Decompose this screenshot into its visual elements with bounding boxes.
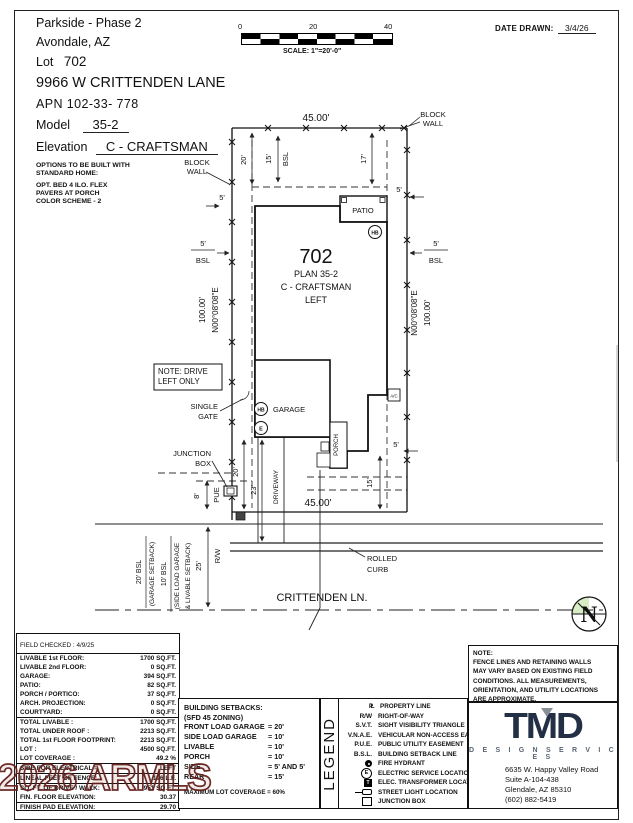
plan-lot-number: 702: [299, 246, 332, 268]
area-rows: LIVABLE 1st FLOOR:1700 SQ.FT. LIVABLE 2n…: [17, 653, 179, 717]
fire-hydrant-icon: [365, 760, 372, 767]
lot-width-bottom: 45.00': [305, 498, 332, 509]
drive-note: NOTE: DRIVE: [158, 367, 208, 376]
street-light-symbol: [236, 512, 245, 520]
bsl-label: BSL: [429, 256, 443, 265]
bsl-label: BSL: [196, 256, 210, 265]
legend-title: LEGEND: [321, 717, 338, 791]
legend-label: JUNCTION BOX: [378, 798, 426, 805]
setback-note: 10' BSL: [161, 562, 168, 586]
setbacks-title: BUILDING SETBACKS:: [184, 703, 314, 713]
tmd-tagline: D E S I G N S E R V I C E S: [469, 747, 617, 761]
legend: LEGEND PLPROPERTY LINE R/WRIGHT-OF-WAY S…: [320, 698, 468, 809]
block-wall-label: BLOCK: [184, 158, 209, 167]
row-label: LIVABLE 1st FLOOR:: [20, 654, 84, 663]
table-row: TOTAL LIVABLE :1700 SQ.FT.: [17, 718, 179, 727]
row-label: GARAGE:: [20, 672, 50, 681]
drive-note: LEFT ONLY: [158, 377, 201, 386]
row-label: LIVABLE 2nd FLOOR:: [20, 663, 86, 672]
note-title: NOTE:: [473, 649, 613, 658]
legend-row: TELEC. TRANSFORMER LOCATION: [342, 778, 481, 788]
row-label: TOTAL 1st FLOOR FOOTPRINT:: [20, 736, 116, 745]
row-value: = 10': [268, 742, 314, 752]
electric-label: E: [259, 427, 263, 433]
table-row: LIVABLE 1st FLOOR:1700 SQ.FT.: [17, 654, 179, 663]
row-label: PORCH / PORTICO:: [20, 690, 80, 699]
ac-label: A/C: [390, 394, 397, 399]
tmd-phone: (602) 882-5419: [505, 795, 617, 805]
block-wall-label: BLOCK: [420, 110, 445, 119]
dim-25: 25': [194, 561, 203, 571]
junction-box-icon: [362, 797, 372, 806]
row-value: 394 SQ.FT.: [144, 672, 176, 681]
row-label: SIDE LOAD GARAGE: [184, 732, 268, 742]
transformer-icon: T: [364, 779, 372, 787]
setbacks-zoning: (SFD 45 ZONING): [184, 713, 314, 723]
dim-15: 15': [365, 478, 374, 488]
legend-label: RIGHT-OF-WAY: [378, 713, 424, 720]
bearing-distance-right: 100.00': [423, 300, 432, 326]
setback-row: LIVABLE= 10': [184, 742, 314, 752]
setback-row: FRONT LOAD GARAGE= 20': [184, 722, 314, 732]
tmd-address-line: Glendale, AZ 85310: [505, 785, 617, 795]
row-value: 82 SQ.FT.: [147, 681, 176, 690]
pue-label: PUE: [212, 487, 221, 502]
armls-watermark: 2026 ARMLS: [0, 757, 211, 799]
block-wall-label: WALL: [423, 119, 443, 128]
legend-label: BUILDING SETBACK LINE: [378, 751, 457, 758]
pue-symbol: P.U.E.: [342, 741, 372, 748]
table-row: TOTAL UNDER ROOF :2213 SQ.FT.: [17, 727, 179, 736]
table-row: ARCH. PROJECTION:0 SQ.FT.: [17, 699, 179, 708]
street-name: CRITTENDEN LN.: [276, 592, 367, 604]
table-row: LIVABLE 2nd FLOOR:0 SQ.FT.: [17, 663, 179, 672]
note-box: NOTE: FENCE LINES AND RETAINING WALLS MA…: [468, 645, 618, 702]
row-value: 0 SQ.FT.: [151, 663, 176, 672]
dim-5: 5': [200, 239, 206, 248]
legend-row: B.S.L.BUILDING SETBACK LINE: [342, 750, 481, 760]
patio-label: PATIO: [352, 206, 374, 215]
rolled-curb-label: CURB: [367, 565, 388, 574]
hose-bib-label: HB: [257, 408, 265, 414]
setback-note: & LIVABLE SETBACK): [185, 543, 192, 609]
tmd-logo-triangle-icon: [541, 708, 553, 717]
dim-5: 5': [393, 440, 399, 449]
dim-5: 5': [396, 185, 402, 194]
dim-15: 15': [264, 154, 273, 164]
bearing-right: N00°08'08"E: [410, 290, 419, 335]
dim-20: 20': [231, 467, 240, 477]
junction-box-label: JUNCTION: [173, 449, 211, 458]
note-line: FENCE LINES AND RETAINING WALLS: [473, 658, 613, 667]
bearing-left: N00°08'08"E: [211, 287, 220, 332]
garage-label: GARAGE: [273, 405, 305, 414]
tmd-address-line: Suite A-104-438: [505, 775, 617, 785]
row-value: 0 SQ.FT.: [151, 699, 176, 708]
row-value: = 5' AND 5': [268, 762, 314, 772]
tmd-logo-wrap: TMD: [469, 705, 617, 747]
vnae-symbol: V.N.A.E.: [342, 732, 372, 739]
dim-20: 20': [239, 155, 248, 165]
row-label: FINISH PAD ELEVATION:: [20, 803, 95, 812]
hose-bib-label: HB: [371, 231, 379, 237]
tmd-address-line: 6635 W. Happy Valley Road: [505, 765, 617, 775]
street-light-icon: [355, 789, 372, 795]
row-value: = 20': [268, 722, 314, 732]
table-row: PATIO:82 SQ.FT.: [17, 681, 179, 690]
dim-23: 23': [249, 485, 258, 495]
setback-row: SIDE LOAD GARAGE= 10': [184, 732, 314, 742]
tmd-box: TMD D E S I G N S E R V I C E S 6635 W. …: [468, 702, 618, 809]
legend-row: STREET LIGHT LOCATION: [342, 788, 481, 798]
legend-label: ELECTRIC SERVICE LOCATION: [378, 770, 473, 777]
field-checked: FIELD CHECKED : 4/9/25: [17, 634, 179, 649]
setback-note: 20' BSL: [136, 560, 143, 584]
table-row: PORCH / PORTICO:37 SQ.FT.: [17, 690, 179, 699]
north-label: N: [581, 602, 598, 627]
rolled-curb-label: ROLLED: [367, 554, 398, 563]
legend-row: V.N.A.E.VEHICULAR NON-ACCESS EASE.: [342, 731, 481, 741]
dim-8: 8': [192, 493, 201, 499]
row-label: PATIO:: [20, 681, 41, 690]
plan-name: PLAN 35-2: [294, 269, 338, 279]
row-value: 4500 SQ.FT.: [140, 745, 176, 754]
legend-label: FIRE HYDRANT: [378, 760, 425, 767]
site-plan-page: Parkside - Phase 2 Avondale, AZ Lot 702 …: [0, 0, 633, 823]
legend-label: ELEC. TRANSFORMER LOCATION: [378, 779, 481, 786]
row-value: 1700 SQ.FT.: [140, 654, 176, 663]
legend-row: P.U.E.PUBLIC UTILITY EASEMENT: [342, 740, 481, 750]
setback-note: (GARAGE SETBACK): [149, 542, 156, 606]
plan-elevation: C - CRAFTSMAN: [281, 282, 352, 292]
row-label: TOTAL UNDER ROOF :: [20, 727, 89, 736]
legend-row: JUNCTION BOX: [342, 797, 481, 807]
table-row: LOT :4500 SQ.FT.: [17, 745, 179, 754]
legend-row: PLPROPERTY LINE: [342, 702, 481, 712]
tmd-address: 6635 W. Happy Valley Road Suite A-104-43…: [505, 765, 617, 805]
bsl-label: BSL: [281, 152, 290, 166]
table-row: GARAGE:394 SQ.FT.: [17, 672, 179, 681]
bsl-symbol: B.S.L.: [342, 751, 372, 758]
driveway-label: DRIVEWAY: [273, 469, 280, 504]
row-value: 29.70: [160, 803, 176, 812]
row-value: 37 SQ.FT.: [147, 690, 176, 699]
row-value: 2213 SQ.FT.: [140, 727, 176, 736]
legend-title-strip: LEGEND: [321, 699, 339, 808]
junction-box-label: BOX: [195, 459, 211, 468]
dim-5: 5': [219, 193, 225, 202]
rw-symbol: R/W: [342, 713, 372, 720]
row-label: COURTYARD:: [20, 708, 62, 717]
legend-label: STREET LIGHT LOCATION: [378, 789, 458, 796]
legend-row: R/WRIGHT-OF-WAY: [342, 712, 481, 722]
porch-label: PORCH: [334, 434, 340, 456]
legend-label: PUBLIC UTILITY EASEMENT: [378, 741, 464, 748]
dim-5: 5': [433, 239, 439, 248]
dim-17: 17': [359, 154, 368, 164]
note-line: MAY VARY BASED ON EXISTING FIELD: [473, 667, 613, 676]
block-wall-label: WALL: [187, 167, 207, 176]
row-label: TOTAL LIVABLE :: [20, 718, 73, 727]
bearing-distance-left: 100.00': [198, 297, 207, 323]
row-value: 2213 SQ.FT.: [140, 736, 176, 745]
single-gate-label: GATE: [198, 412, 218, 421]
row-label: LOT :: [20, 745, 37, 754]
single-gate-label: SINGLE: [190, 402, 218, 411]
note-line: ORIENTATION, AND UTILITY LOCATIONS: [473, 686, 613, 695]
property-line-symbol: PL: [342, 703, 374, 710]
table-row: TOTAL 1st FLOOR FOOTPRINT:2213 SQ.FT.: [17, 736, 179, 745]
row-value: = 15': [268, 772, 314, 782]
row-value: = 10': [268, 752, 314, 762]
row-label: FRONT LOAD GARAGE: [184, 722, 268, 732]
legend-row: EELECTRIC SERVICE LOCATION: [342, 769, 481, 779]
lot-width-top: 45.00': [303, 113, 330, 124]
svt-symbol: S.V.T.: [342, 722, 372, 729]
rw-label: R/W: [213, 548, 222, 564]
legend-label: PROPERTY LINE: [380, 703, 431, 710]
table-row: COURTYARD:0 SQ.FT.: [17, 708, 179, 717]
row-value: 0 SQ.FT.: [151, 708, 176, 717]
row-label: ARCH. PROJECTION:: [20, 699, 86, 708]
setback-note: (SIDE LOAD GARAGE: [174, 542, 181, 609]
plan-orientation: LEFT: [305, 295, 328, 305]
row-label: LIVABLE: [184, 742, 268, 752]
row-value: 1700 SQ.FT.: [140, 718, 176, 727]
electric-service-icon: E: [361, 768, 372, 779]
legend-row: S.V.T.SIGHT VISIBILITY TRIANGLE: [342, 721, 481, 731]
note-line: CONDITIONS. ALL MEASUREMENTS,: [473, 677, 613, 686]
north-arrow: N: [572, 597, 606, 631]
pad-row: FINISH PAD ELEVATION:29.70: [17, 802, 179, 812]
row-value: = 10': [268, 732, 314, 742]
legend-label: SIGHT VISIBILITY TRIANGLE: [378, 722, 465, 729]
